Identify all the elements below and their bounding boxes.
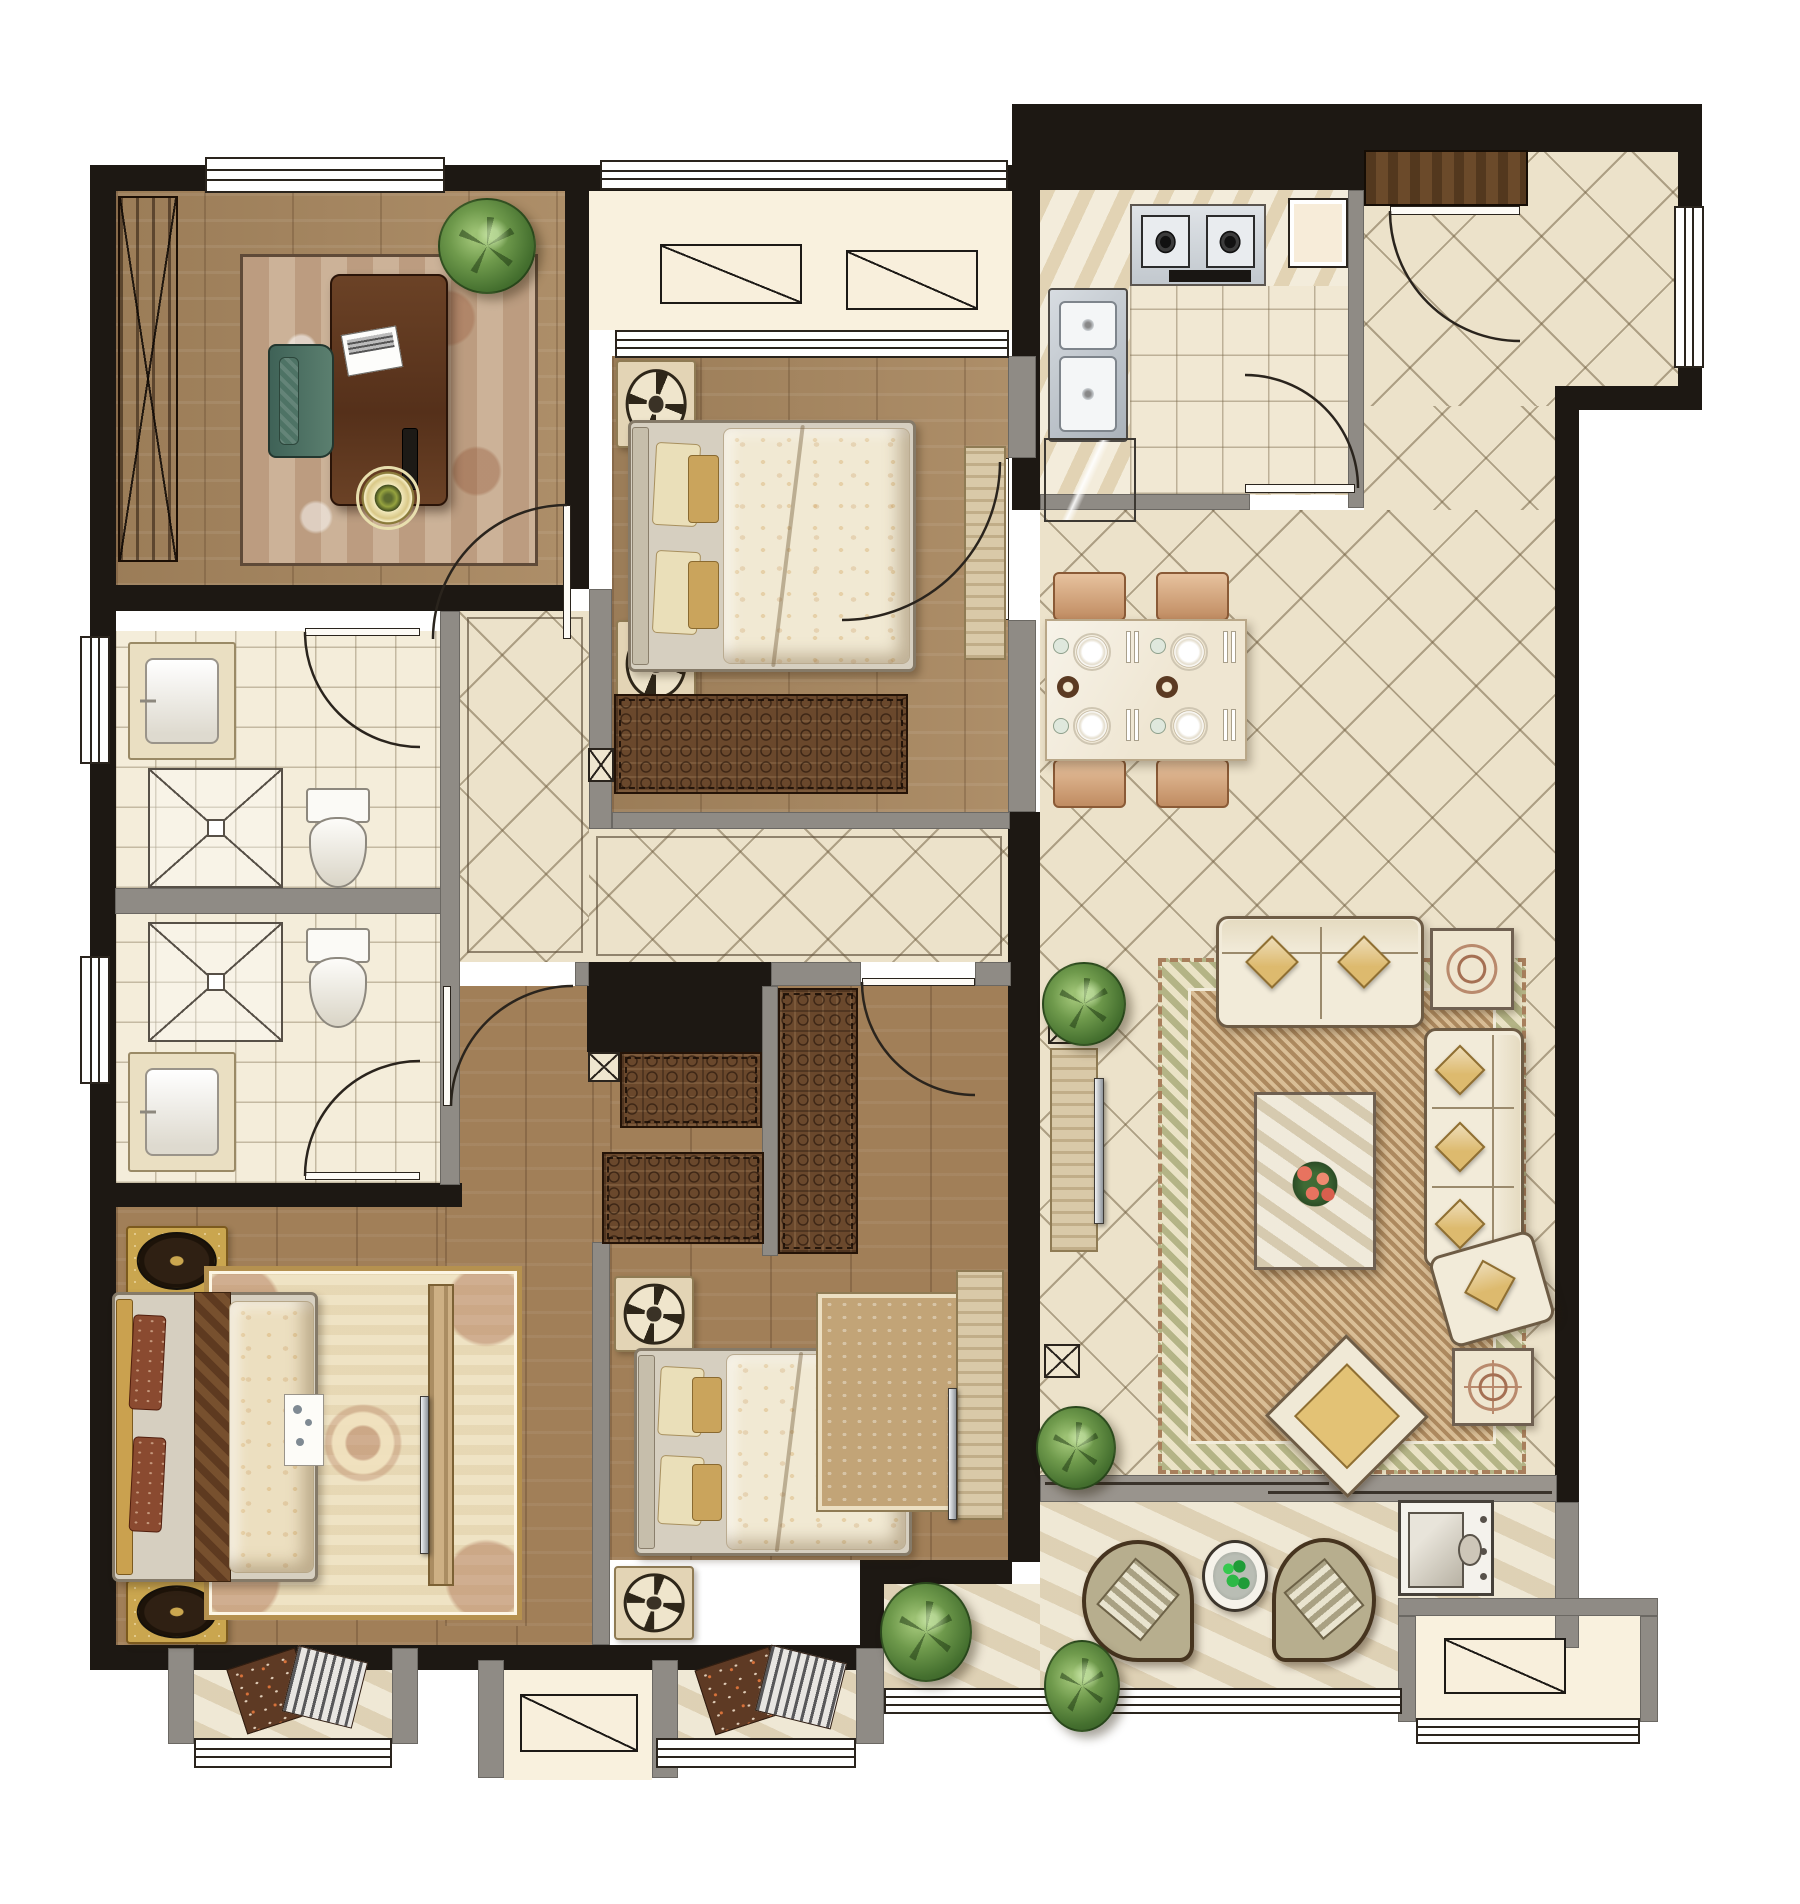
window	[80, 956, 110, 1084]
bedroom-top-wardrobe	[614, 694, 908, 794]
living-sofa-right	[1424, 1028, 1524, 1268]
wall	[392, 1648, 418, 1744]
kitchen-floor	[1130, 286, 1348, 494]
balcony-lounge-chair-1	[1082, 1540, 1194, 1662]
wall	[592, 1242, 610, 1645]
wall	[762, 986, 778, 1256]
living-side-table	[1452, 1348, 1534, 1426]
entry-floor-2	[1364, 406, 1557, 510]
bedroom-bottom-tv-bench	[956, 1270, 1004, 1520]
bedroom-top-xbox	[588, 748, 614, 782]
bath-lower-shower	[148, 922, 283, 1042]
bedroom-bottom-wardrobe	[778, 988, 858, 1254]
study-plant	[438, 198, 536, 294]
window	[884, 1688, 1402, 1714]
bedroom-bottom-door-leaf	[862, 978, 975, 986]
window	[1416, 1718, 1640, 1744]
corridor-border-v	[467, 617, 583, 953]
window	[1674, 206, 1704, 368]
balcony-plant-2	[1044, 1640, 1120, 1732]
bath-upper-shower	[148, 768, 283, 888]
study-door-leaf	[563, 505, 571, 639]
bedroom-bottom-tv	[948, 1388, 957, 1520]
bath-lower-toilet	[302, 926, 374, 1030]
balcony-plant-1	[880, 1582, 972, 1682]
living-tv	[1094, 1078, 1104, 1224]
balcony-washer	[1398, 1500, 1494, 1596]
wall	[168, 1648, 194, 1744]
window	[194, 1738, 392, 1768]
study-gold-tray	[356, 466, 420, 530]
living-coffee-table	[1254, 1092, 1376, 1270]
wall	[575, 962, 589, 986]
wall	[1040, 104, 1370, 190]
master-tv	[420, 1396, 429, 1554]
wall	[478, 1660, 504, 1778]
wall	[1008, 620, 1036, 812]
window	[600, 160, 1008, 190]
balcony-round-table	[1202, 1540, 1268, 1612]
study-closet	[118, 196, 178, 562]
window	[80, 636, 110, 764]
closet-wardrobe-b	[602, 1152, 764, 1244]
master-tv-partition	[428, 1284, 454, 1586]
wall	[771, 962, 861, 986]
dining-set	[1045, 572, 1247, 808]
wall	[1398, 1598, 1658, 1616]
kitchen-cabinet	[1288, 198, 1348, 268]
study-chair	[268, 344, 334, 458]
bedroom-top-bench	[964, 446, 1006, 660]
bay-mid-pillows	[700, 1650, 840, 1734]
bath-upper-toilet	[302, 786, 374, 890]
living-sofa-top	[1216, 916, 1424, 1028]
living-speaker-2	[1044, 1344, 1080, 1378]
wall	[587, 962, 771, 1052]
bedroom-top-bed	[628, 420, 916, 672]
kitchen-stove	[1130, 204, 1266, 286]
entry-shoe-cabinet	[1364, 150, 1528, 206]
ac-unit-top-1	[660, 244, 802, 304]
bedroom-bottom-rug	[818, 1294, 966, 1510]
living-plant-2	[1036, 1406, 1116, 1490]
wall	[115, 888, 441, 914]
wall	[1370, 104, 1702, 152]
wall	[90, 585, 566, 611]
wall	[589, 589, 612, 829]
living-tv-bench	[1050, 1048, 1098, 1252]
closet-xbox	[588, 1052, 620, 1082]
corridor-border-h	[596, 836, 1002, 956]
bedroom-bottom-nightstand-2	[614, 1566, 694, 1640]
closet-wardrobe-a	[620, 1052, 762, 1128]
wall	[90, 1183, 462, 1207]
bedroom-bottom-nightstand-1	[614, 1276, 694, 1352]
bath-upper-sink	[128, 642, 236, 760]
window	[615, 330, 1009, 358]
kitchen-sink	[1048, 288, 1128, 442]
floor-plan	[0, 0, 1800, 1904]
living-corner-table	[1430, 928, 1514, 1010]
wall	[1555, 1502, 1579, 1648]
ac-unit-top-2	[846, 250, 978, 310]
ac-unit-southeast	[1444, 1638, 1566, 1694]
wall	[1348, 190, 1364, 508]
balcony-lounge-chair-2	[1272, 1538, 1376, 1662]
window	[656, 1738, 856, 1768]
wall	[975, 962, 1011, 986]
kitchen-door-leaf	[1245, 484, 1355, 493]
living-ottoman	[1270, 1348, 1424, 1484]
bay-left-pillows	[232, 1650, 362, 1734]
wall	[856, 1648, 884, 1744]
wall	[860, 1560, 1012, 1584]
bath-lower-sink	[128, 1052, 236, 1172]
bath-lower-door-leaf	[305, 1172, 420, 1180]
window	[205, 157, 445, 193]
ac-unit-south	[520, 1694, 638, 1752]
master-door-leaf	[443, 986, 451, 1106]
wall	[1555, 406, 1579, 1504]
living-plant-1	[1042, 962, 1126, 1046]
wall	[1008, 356, 1036, 458]
entry-door-leaf	[1390, 206, 1520, 215]
wall	[612, 812, 1010, 829]
master-tray	[284, 1394, 324, 1466]
wall	[1640, 1616, 1658, 1722]
fridge	[1044, 438, 1136, 522]
bath-upper-door-leaf	[305, 628, 420, 636]
